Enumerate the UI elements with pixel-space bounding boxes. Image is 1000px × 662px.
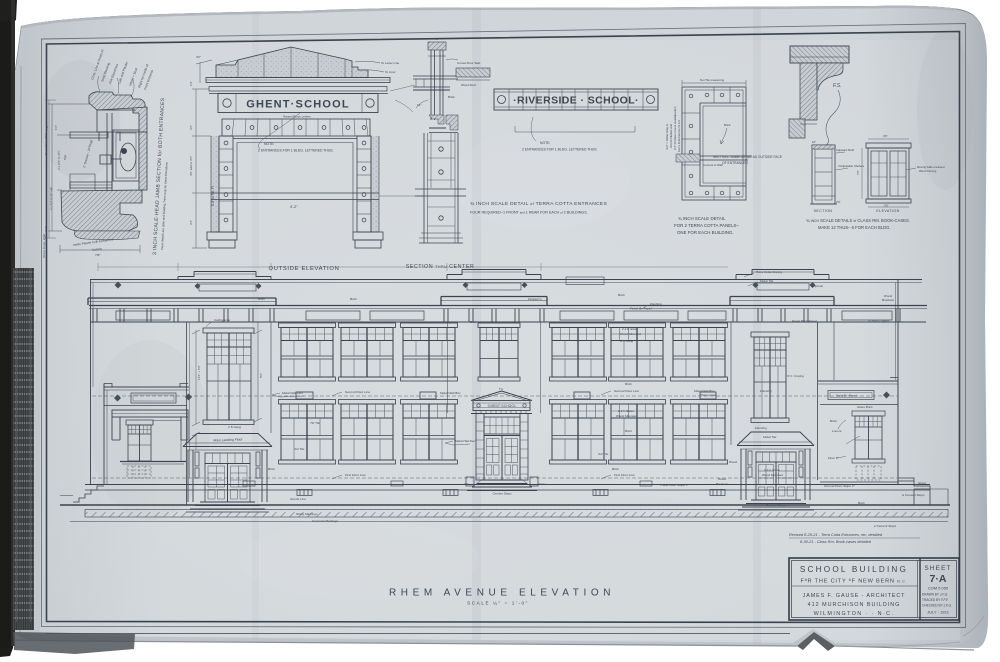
svg-text:First Floor Line: First Floor Line xyxy=(345,473,366,477)
svg-text:Travel Floor Slope 3": Travel Floor Slope 3" xyxy=(660,483,690,487)
svg-text:COM 5 050: COM 5 050 xyxy=(928,586,949,591)
svg-text:Metal Wall Dim: Metal Wall Dim xyxy=(282,391,303,395)
svg-text:Brick: Brick xyxy=(268,467,275,471)
svg-text:3 Adjustable Shelves: 3 Adjustable Shelves xyxy=(838,164,865,168)
svg-text:2-1¾ Glass: 2-1¾ Glass xyxy=(764,468,780,472)
svg-text:16": 16" xyxy=(417,103,421,107)
svg-text:Stone Dets. Wall: Stone Dets. Wall xyxy=(44,133,48,155)
svg-text:Metal Hall Den: Metal Hall Den xyxy=(455,439,476,443)
svg-text:¾ INCH SCALE DETAIL: ¾ INCH SCALE DETAIL xyxy=(678,216,726,221)
svg-text:Stone Conc. Wall: Stone Conc. Wall xyxy=(42,234,46,258)
svg-text:2": 2" xyxy=(436,37,439,41)
svg-text:First Floor Line: First Floor Line xyxy=(614,473,635,477)
svg-text:Metal Wall Box: Metal Wall Box xyxy=(440,391,461,395)
svg-text:Ceiling Line: Ceiling Line xyxy=(214,318,230,322)
svg-text:W.G.R.Outlets and: W.G.R.Outlets and xyxy=(669,124,673,148)
svg-text:3'6": 3'6" xyxy=(884,204,889,208)
svg-text:Flashing: Flashing xyxy=(650,302,662,306)
svg-text:Wood framing: Wood framing xyxy=(919,169,937,173)
svg-text:4'6": 4'6" xyxy=(883,134,888,138)
svg-text:JULY · 1921: JULY · 1921 xyxy=(927,610,950,615)
svg-text:OF ENTRANCES: OF ENTRANCES xyxy=(722,161,749,165)
svg-text:Revised 8-29-21 - Terra Cotta: Revised 8-29-21 - Terra Cotta Entrances,… xyxy=(789,532,883,537)
svg-text:Louvre: Louvre xyxy=(832,429,842,433)
svg-text:⅞ Hugs Ceiling: ⅞ Hugs Ceiling xyxy=(868,319,889,323)
svg-text:Thermostat: Thermostat xyxy=(700,393,716,397)
svg-text:Wood Roof: Wood Roof xyxy=(461,83,476,87)
svg-text:Brick: Brick xyxy=(470,320,477,324)
svg-text:Brackets: Brackets xyxy=(882,298,894,302)
svg-text:2 Cement Steps: 2 Cement Steps xyxy=(873,524,897,528)
svg-text:Brick: Brick xyxy=(448,95,455,99)
svg-text:Wood: Wood xyxy=(729,460,737,464)
svg-text:Second Floor Line: Second Floor Line xyxy=(614,389,639,393)
svg-text:7'0": 7'0" xyxy=(856,170,860,175)
svg-text:Brick: Brick xyxy=(724,123,731,127)
svg-text:R 3 Gang: R 3 Gang xyxy=(620,339,634,343)
svg-text:To Liner: To Liner xyxy=(385,70,396,74)
svg-text:Brick: Brick xyxy=(830,419,837,423)
svg-text:SHEET: SHEET xyxy=(924,565,951,572)
svg-text:Wood Mounted: Wood Mounted xyxy=(620,332,641,336)
svg-text:Floor 3: Floor 3 xyxy=(828,456,838,460)
svg-text:1'0": 1'0" xyxy=(189,81,193,86)
svg-text:·RIVERSIDE · SCHOOL·: ·RIVERSIDE · SCHOOL· xyxy=(513,95,639,107)
svg-text:3'6": 3'6" xyxy=(189,125,193,130)
svg-text:Sand Br. Panel: Sand Br. Panel xyxy=(836,394,857,398)
svg-text:NOTE:: NOTE: xyxy=(540,141,550,145)
svg-text:Cement Steps: Cement Steps xyxy=(492,492,512,496)
svg-text:To Letter Line: To Letter Line xyxy=(381,61,400,65)
svg-text:7·A: 7·A xyxy=(930,573,947,585)
svg-text:2 x 2½" R 4½": 2 x 2½" R 4½" xyxy=(57,150,61,170)
svg-text:Brick: Brick xyxy=(858,501,865,505)
svg-text:SCALE ¼" = 1'-0": SCALE ¼" = 1'-0" xyxy=(467,601,529,606)
svg-text:11'6" + 4'6": 11'6" + 4'6" xyxy=(197,365,201,380)
svg-text:Flashing: Flashing xyxy=(760,389,772,393)
svg-text:Cut 1 R Entrances W 1/2: Cut 1 R Entrances W 1/2 xyxy=(677,120,681,152)
svg-text:Finish Br. Panel: Finish Br. Panel xyxy=(630,307,652,311)
svg-text:Cement to Wall: Cement to Wall xyxy=(703,163,723,167)
svg-text:Concrete Markings: Concrete Markings xyxy=(312,519,338,523)
svg-text:7th Tile: 7th Tile xyxy=(310,421,320,425)
svg-text:3rd Tile: 3rd Tile xyxy=(598,452,609,456)
svg-text:FºR THE CITY ºF NEW BERN N.C.: FºR THE CITY ºF NEW BERN N.C. xyxy=(801,578,908,585)
svg-text:2 x 2/2" R 42" Hgt: 2 x 2/2" R 42" Hgt xyxy=(49,187,53,210)
svg-text:Wood Mounted: Wood Mounted xyxy=(762,473,783,477)
svg-text:Glass Brick: Glass Brick xyxy=(857,405,873,409)
svg-text:Brick: Brick xyxy=(350,297,357,301)
svg-text:Wood Mounted: Wood Mounted xyxy=(616,414,637,418)
svg-text:Brick: Brick xyxy=(618,293,625,297)
svg-text:8-30-21 - Class Rm. Book-cases: 8-30-21 - Class Rm. Book-cases detailed xyxy=(800,539,872,544)
svg-text:7'2": 7'2" xyxy=(45,125,49,130)
svg-text:Goods Line: Goods Line xyxy=(290,497,306,501)
svg-text:·GHENT·SCHOOL·: ·GHENT·SCHOOL· xyxy=(487,404,518,408)
svg-text:Adjusted Shelf: Adjusted Shelf xyxy=(836,148,854,152)
svg-text:2-1¾ Glass: 2-1¾ Glass xyxy=(617,409,634,413)
svg-text:Flashing: Flashing xyxy=(755,426,767,430)
svg-text:¾ INCH SCALE DETAIL of TERRA C: ¾ INCH SCALE DETAIL of TERRA COTTA ENTRA… xyxy=(470,201,607,207)
svg-text:10": 10" xyxy=(812,140,816,144)
svg-text:3rd Tile: 3rd Tile xyxy=(294,447,305,451)
svg-text:6'-8" to Fin. Fl.: 6'-8" to Fin. Fl. xyxy=(211,185,215,206)
svg-text:Brackets: Brackets xyxy=(716,482,728,486)
svg-text:Cement Steps: Cement Steps xyxy=(766,503,786,507)
svg-text:Topcoat: Topcoat xyxy=(812,284,823,288)
svg-text:5'6": 5'6" xyxy=(259,373,263,378)
svg-text:F.S.: F.S. xyxy=(833,83,842,89)
svg-text:2 S Gang: 2 S Gang xyxy=(227,425,241,429)
svg-text:H.C. Coping: H.C. Coping xyxy=(787,374,804,378)
svg-text:TRACED BY F.F.F.: TRACED BY F.F.F. xyxy=(922,598,949,602)
svg-text:Floated ¾: Floated ¾ xyxy=(528,297,542,301)
svg-text:CHECKED BY J.F.G.: CHECKED BY J.F.G. xyxy=(922,604,952,608)
svg-text:1'3": 1'3" xyxy=(54,125,58,130)
svg-text:JAMES F. GAUSE - ARCHITECT: JAMES F. GAUSE - ARCHITECT xyxy=(803,593,906,599)
svg-text:7/8": 7/8" xyxy=(95,253,100,257)
svg-text:412 MURCHISON BUILDING: 412 MURCHISON BUILDING xyxy=(808,602,901,608)
svg-text:WILMINGTON · · N·C.: WILMINGTON · · N·C. xyxy=(814,611,895,617)
svg-text:Not Tile measuring: Not Tile measuring xyxy=(700,78,724,82)
svg-text:String Markings: String Markings xyxy=(296,512,318,516)
svg-text:RHEM AVENUE ELEVATION: RHEM AVENUE ELEVATION xyxy=(389,588,615,599)
svg-text:Stone: Stone xyxy=(539,482,546,486)
svg-text:¾ INCH SCALE DETAILS of CLASS: ¾ INCH SCALE DETAILS of CLASS RM. BOOK-C… xyxy=(806,218,910,223)
svg-text:Wood: Wood xyxy=(718,477,726,481)
svg-text:FOR 2 TERRA COTTA PANELS–: FOR 2 TERRA COTTA PANELS– xyxy=(674,223,739,228)
svg-text:Brick: Brick xyxy=(258,297,265,301)
svg-text:Raised Block Letters: Raised Block Letters xyxy=(283,115,311,119)
svg-text:Stone: Stone xyxy=(918,481,926,485)
svg-text:& Cement Steps: & Cement Steps xyxy=(902,493,925,497)
svg-text:2 ENTRANCES FOR 1 BLDG. LETTER: 2 ENTRANCES FOR 1 BLDG. LETTERED THUS. xyxy=(522,148,598,152)
svg-text:3'4": 3'4" xyxy=(189,220,193,225)
svg-text:2'6": 2'6" xyxy=(836,200,841,204)
svg-text:SCHOOL BUILDING: SCHOOL BUILDING xyxy=(800,565,908,574)
svg-text:ONE FOR EACH BUILDING.: ONE FOR EACH BUILDING. xyxy=(677,230,734,235)
svg-text:2 ENTRANCES FOR 1 BLDG. LETTER: 2 ENTRANCES FOR 1 BLDG. LETTERED THUS. xyxy=(258,149,334,153)
svg-text:Brick: Brick xyxy=(625,429,632,433)
svg-text:Hgt.: Hgt. xyxy=(63,154,67,160)
svg-text:DRAWN BY J.F.G.: DRAWN BY J.F.G. xyxy=(922,593,948,597)
svg-text:Panel Brick Panel: Panel Brick Panel xyxy=(792,319,817,323)
svg-text:GHENT·SCHOOL: GHENT·SCHOOL xyxy=(246,99,350,111)
svg-text:4'0": 4'0" xyxy=(464,482,468,486)
svg-text:4'0": 4'0" xyxy=(196,55,201,59)
svg-text:Comet Floor Slab: Comet Floor Slab xyxy=(457,61,481,65)
svg-text:2-1¾ Glass: 2-1¾ Glass xyxy=(621,327,638,331)
svg-text:Second Floor Line: Second Floor Line xyxy=(345,390,370,394)
svg-text:Metal Tile: Metal Tile xyxy=(760,279,774,283)
svg-text:MAKE 12 THUS– 6 FOR EACH BLDG.: MAKE 12 THUS– 6 FOR EACH BLDG. xyxy=(818,225,891,230)
svg-text:SECTION– SAME DETAIL AS OUTSID: SECTION– SAME DETAIL AS OUTSIDE FACE xyxy=(713,155,783,159)
svg-text:NOTE:: NOTE: xyxy=(264,142,274,146)
svg-text:ELEVATION: ELEVATION xyxy=(876,209,899,213)
svg-text:SECTION: SECTION xyxy=(814,209,833,213)
svg-text:4'0" add to 3'6": 4'0" add to 3'6" xyxy=(189,156,193,176)
svg-text:4'-2": 4'-2" xyxy=(290,205,298,209)
svg-text:Brick: Brick xyxy=(612,467,619,471)
svg-text:T.C.: T.C. xyxy=(499,387,504,391)
svg-text:Brick: Brick xyxy=(625,382,632,386)
svg-text:4'/2" = Water Mng.Lt.: 4'/2" = Water Mng.Lt. xyxy=(665,123,669,150)
svg-text:Ground Floor Slope 3": Ground Floor Slope 3" xyxy=(824,484,856,488)
svg-text:Terra Cotta Coping: Terra Cotta Coping xyxy=(756,270,782,274)
svg-text:Metal Tile: Metal Tile xyxy=(763,435,777,439)
svg-text:FOUR REQUIRED–1 FRONT and 1 RE: FOUR REQUIRED–1 FRONT and 1 REAR FOR EAC… xyxy=(470,211,588,215)
